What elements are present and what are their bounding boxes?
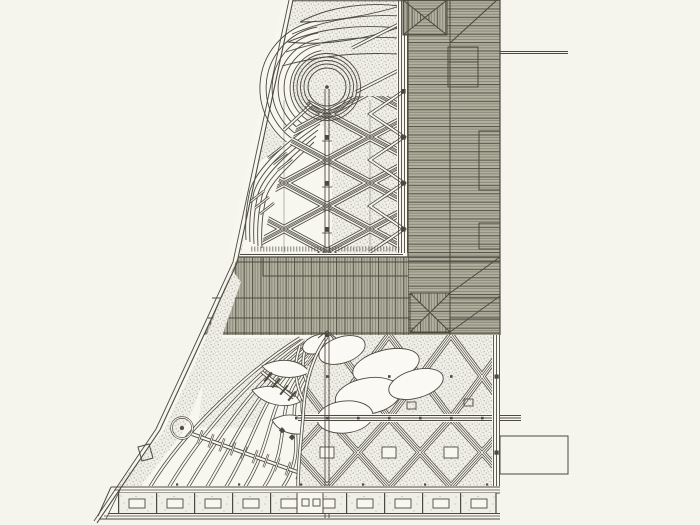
axis-gap-cells: [297, 493, 323, 514]
site-plan-svg: [0, 0, 700, 525]
cross-walk-mid: [298, 414, 521, 422]
building-roof-hatch: [408, 0, 500, 335]
lattice-right-edge-walk: [492, 335, 500, 487]
roof-x-skylight-top: [403, 0, 447, 35]
plan-drawing-canvas: [0, 0, 700, 525]
planter-strip: [98, 483, 500, 519]
plaza-center-point: [325, 85, 329, 89]
roof-x-skylight-middle: [410, 293, 450, 332]
